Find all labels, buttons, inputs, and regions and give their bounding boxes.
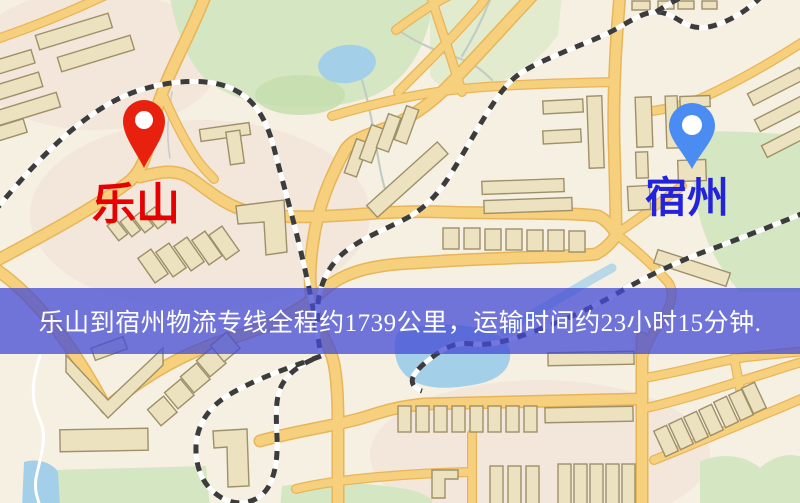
pond-southwest — [22, 460, 60, 503]
park-southeast — [700, 455, 800, 503]
route-info-text: 乐山到宿州物流专线全程约1739公里，运输时间约23小时15分钟. — [39, 303, 762, 339]
map-canvas — [0, 0, 800, 503]
map-screenshot: 乐山到宿州物流专线全程约1739公里，运输时间约23小时15分钟. 乐山 宿州 — [0, 0, 800, 503]
route-info-banner: 乐山到宿州物流专线全程约1739公里，运输时间约23小时15分钟. — [0, 288, 800, 354]
field-southwest — [52, 466, 210, 503]
